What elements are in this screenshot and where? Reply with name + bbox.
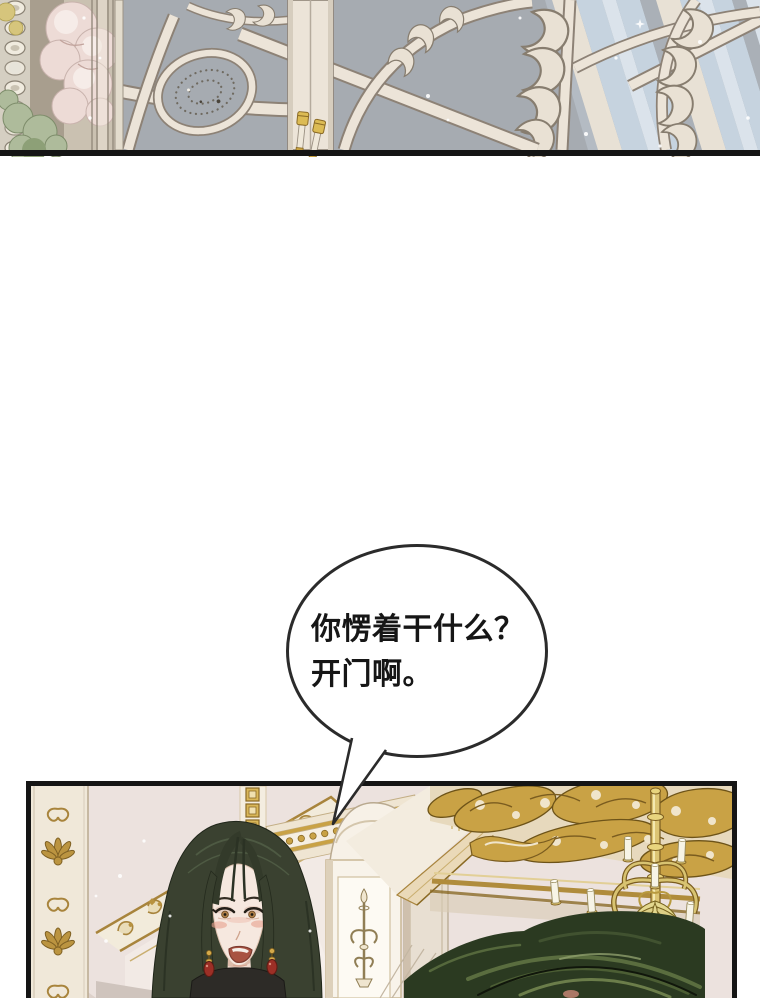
comic-page: 你愣着干什么？ 开门啊。: [0, 0, 760, 998]
panel-ceiling: [0, 0, 760, 157]
speech-bubble-text: 你愣着干什么？ 开门啊。: [311, 607, 525, 697]
left-pilaster: [31, 786, 88, 998]
speech-bubble: 你愣着干什么？ 开门啊。: [286, 544, 548, 758]
bubble-line-2: 开门啊。: [311, 652, 525, 697]
bubble-line-1: 你愣着干什么？: [311, 607, 525, 652]
floral-column: [0, 0, 123, 157]
panel-border-line: [0, 150, 760, 156]
center-beam: [288, 0, 333, 150]
panel-hall: [0, 781, 760, 998]
